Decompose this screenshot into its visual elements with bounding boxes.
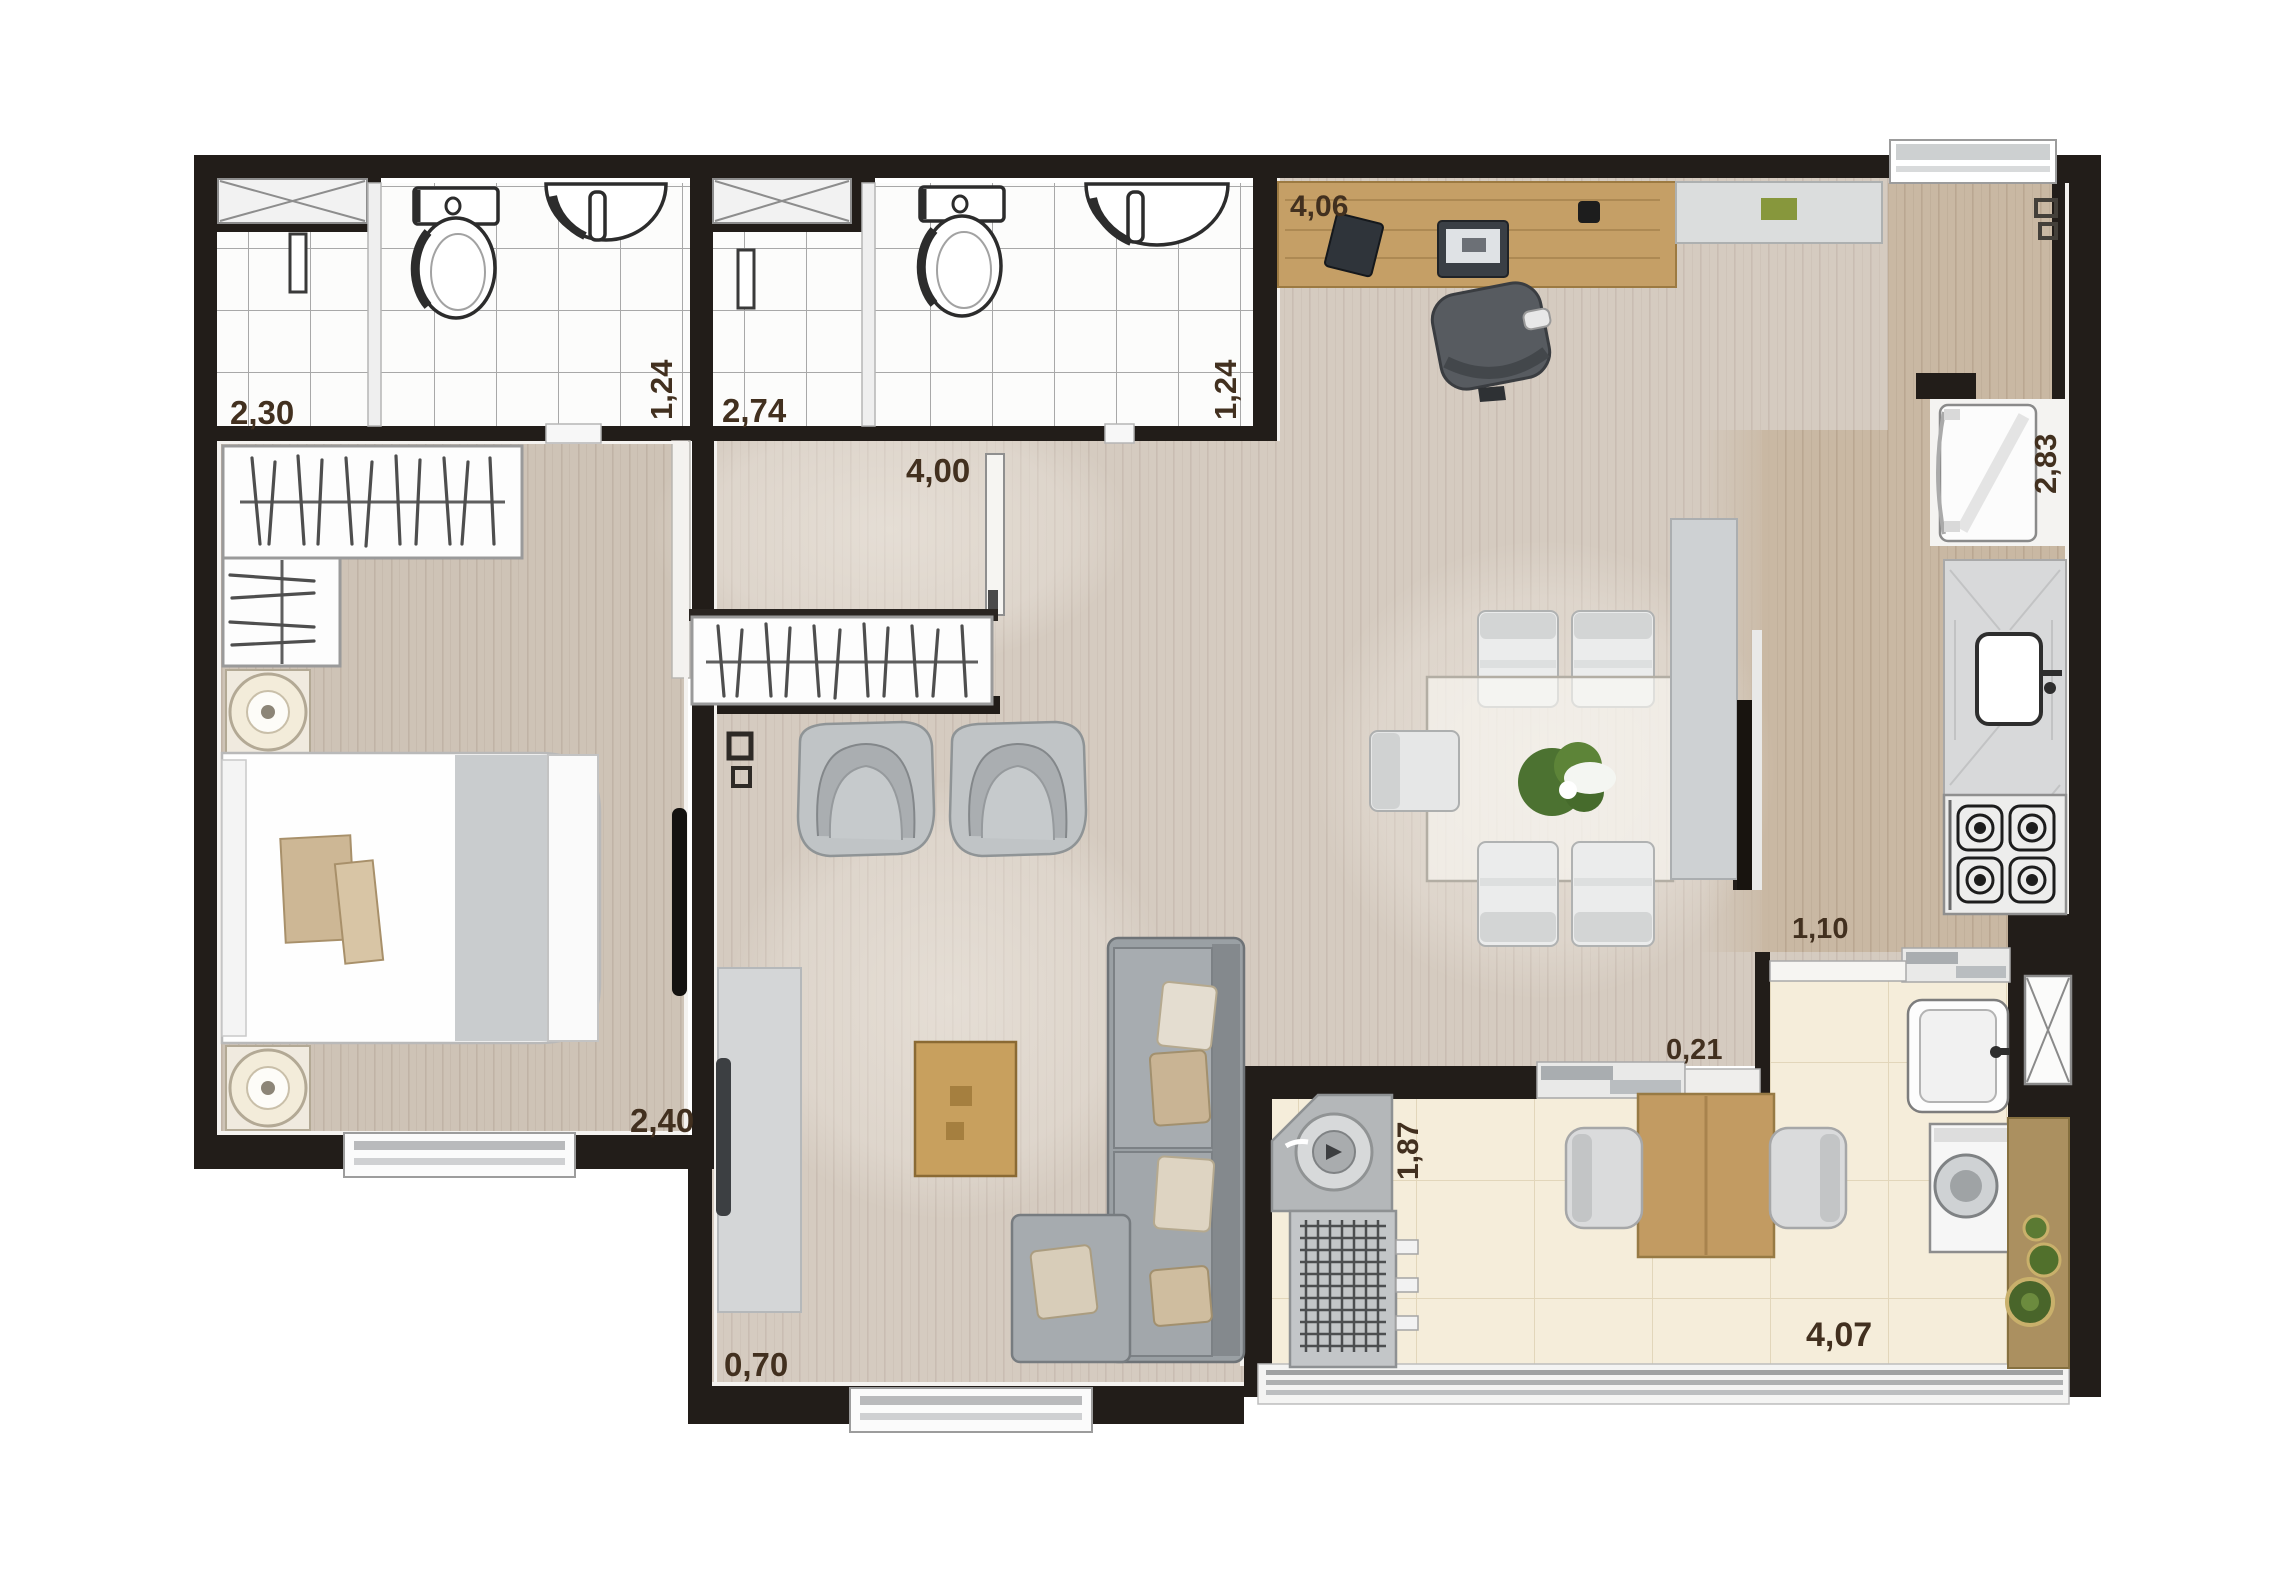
svg-text:4,06: 4,06: [1290, 190, 1348, 223]
svg-text:1,24: 1,24: [644, 359, 679, 420]
svg-text:1,24: 1,24: [1208, 359, 1243, 420]
svg-text:2,30: 2,30: [230, 394, 294, 431]
svg-text:0,70: 0,70: [724, 1346, 788, 1383]
svg-text:4,00: 4,00: [906, 452, 970, 489]
svg-text:2,83: 2,83: [2028, 434, 2063, 494]
svg-text:0,21: 0,21: [1666, 1034, 1722, 1066]
svg-text:1,87: 1,87: [1392, 1122, 1425, 1180]
svg-text:1,10: 1,10: [1792, 913, 1848, 945]
svg-text:2,74: 2,74: [722, 392, 787, 429]
svg-text:4,07: 4,07: [1806, 1316, 1872, 1354]
svg-text:2,40: 2,40: [630, 1102, 694, 1139]
